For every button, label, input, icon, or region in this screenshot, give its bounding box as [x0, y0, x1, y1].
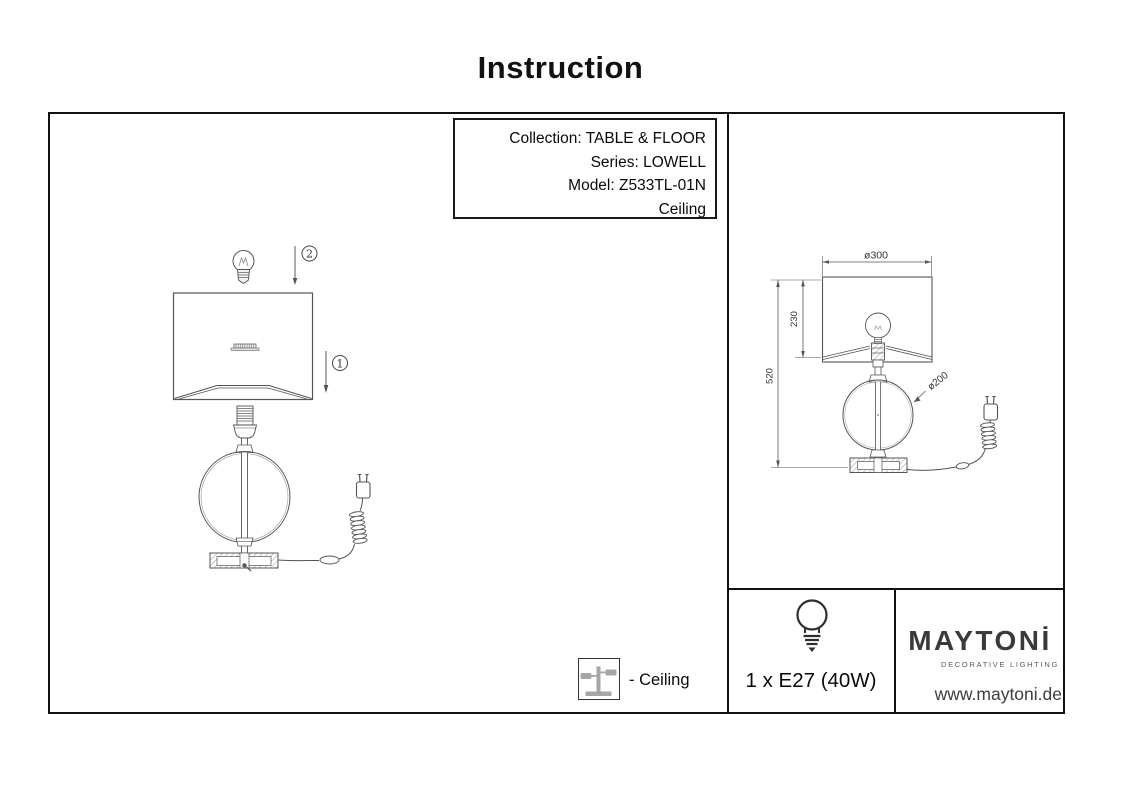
- ceiling-legend-label: - Ceiling: [629, 671, 690, 690]
- footer-horizontal-divider: [727, 588, 1065, 590]
- bulb-spec-text: 1 x E27 (40W): [729, 669, 893, 693]
- plug-icon: [984, 397, 998, 421]
- dim-shade-height: 230: [771, 280, 821, 358]
- step-1-arrow: 1: [324, 351, 348, 393]
- plug-icon: [357, 475, 371, 499]
- lamp-body: [199, 406, 290, 571]
- page-title: Instruction: [0, 50, 1121, 86]
- dim-shade-diameter: ø300: [823, 250, 932, 277]
- exploded-assembly-diagram: 2 1: [170, 238, 382, 590]
- instruction-sheet: Instruction Collection: TABLE & FLOOR Se…: [0, 0, 1121, 793]
- inline-switch: [320, 556, 339, 564]
- bulb-spec-icon: [786, 597, 838, 661]
- dim-glass-diameter: ø200: [914, 370, 951, 402]
- ceiling-legend-box: [578, 658, 620, 700]
- step-2-arrow: 2: [293, 246, 317, 285]
- cord-coil: [349, 511, 367, 544]
- info-type: Ceiling: [455, 198, 706, 222]
- table-lamp-icon: [579, 659, 618, 698]
- bulb-icon: [233, 251, 254, 284]
- step-2-number: 2: [306, 248, 313, 261]
- step-1-number: 1: [337, 358, 344, 371]
- brand-logo: MAYTONİ: [896, 625, 1064, 657]
- svg-text:520: 520: [765, 368, 776, 384]
- power-cord-assembled: [907, 397, 998, 471]
- info-model: Model: Z533TL-01N: [455, 174, 706, 198]
- info-collection: Collection: TABLE & FLOOR: [455, 127, 706, 151]
- product-info-box: Collection: TABLE & FLOOR Series: LOWELL…: [453, 118, 717, 219]
- assembled-body: [843, 360, 913, 473]
- svg-text:ø200: ø200: [926, 370, 951, 393]
- cord-coil: [980, 422, 997, 449]
- brand-website: www.maytoni.de: [896, 684, 1062, 705]
- lamp-shade: [174, 293, 313, 400]
- info-series: Series: LOWELL: [455, 151, 706, 175]
- inline-switch: [956, 462, 969, 470]
- power-cord: [278, 475, 370, 565]
- frame-vertical-divider: [727, 112, 729, 714]
- brand-tagline: DECORATIVE LIGHTING: [896, 660, 1059, 669]
- svg-text:230: 230: [789, 311, 800, 327]
- dimension-diagram: ø300 520 230: [745, 245, 1017, 480]
- svg-text:ø300: ø300: [864, 250, 888, 262]
